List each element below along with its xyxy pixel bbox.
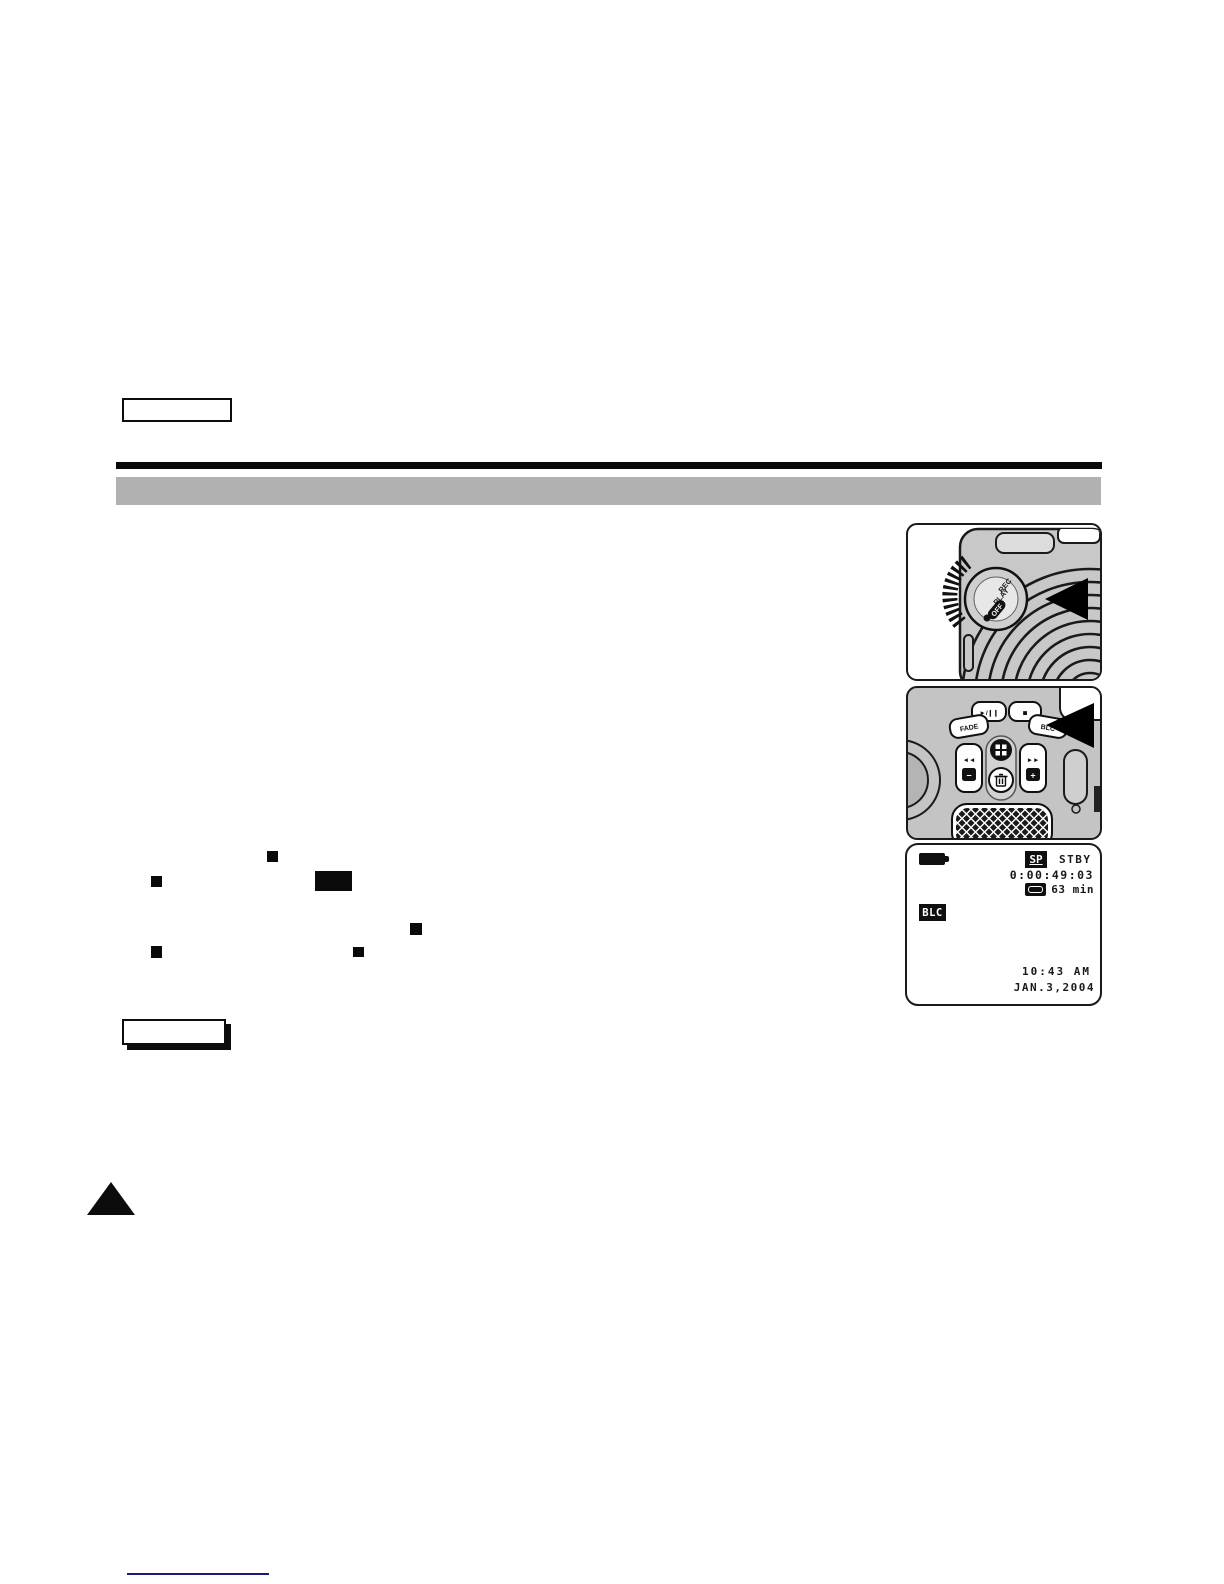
record-speed-label: SP [1029,853,1042,866]
side-slot-detail [964,635,973,671]
speaker-grille-pattern [956,808,1048,838]
battery-icon [919,853,945,865]
blc-indicator-badge: BLC [919,904,946,921]
inline-square-glyph [353,947,364,957]
language-label-box [122,398,232,422]
section-divider-rule [116,462,1102,469]
minus-label: − [966,771,971,781]
stop-label: ■ [1023,709,1028,718]
camera-mode-dot-icon [984,615,991,622]
figure-button-panel: ►/❙❙ ■ FADE BLC ◄◄ − ►► + [906,686,1102,840]
inline-square-glyph [267,851,278,862]
notes-label-box [122,1019,226,1045]
page-corner-triangle [87,1182,135,1215]
figure-mode-dial: REC PLAY OFF [906,523,1102,681]
tape-remaining-row: 63 min [1025,883,1094,896]
mode-dial-illustration: REC PLAY OFF [908,525,1100,679]
side-pill-detail [1064,750,1087,804]
forward-label: ►► [1027,757,1040,764]
multi-display-button [990,739,1012,761]
inline-square-glyph [410,923,422,935]
edge-detail [1094,786,1100,812]
viewfinder-detail [1058,527,1100,543]
button-panel-illustration: ►/❙❙ ■ FADE BLC ◄◄ − ►► + [908,688,1100,838]
fade-button: FADE [949,714,990,739]
inline-keycap-block [315,871,352,891]
timecode: 0:00:49:03 [1010,868,1094,882]
manual-page: REC PLAY OFF [0,0,1224,1584]
list-bullet-square [151,876,162,887]
screw-detail [1072,805,1080,813]
status-label: STBY [1059,853,1092,866]
clock-time: 10:43 AM [1022,965,1091,978]
clock-date: JAN.3,2004 [1014,981,1095,994]
top-deck-detail [996,533,1054,553]
footer-accent-line [127,1573,269,1575]
lens-barrel-arc [908,752,928,808]
delete-button [989,768,1013,792]
tape-icon [1025,883,1046,896]
rewind-label: ◄◄ [963,757,976,764]
record-speed-badge: SP [1025,851,1047,868]
plus-label: + [1030,771,1035,781]
tape-remaining-label: 63 min [1051,883,1094,896]
list-bullet-square [151,946,162,958]
section-header-bar [116,477,1101,505]
osd-display: SP STBY 0:00:49:03 63 min BLC 10:43 AM J… [905,843,1102,1006]
